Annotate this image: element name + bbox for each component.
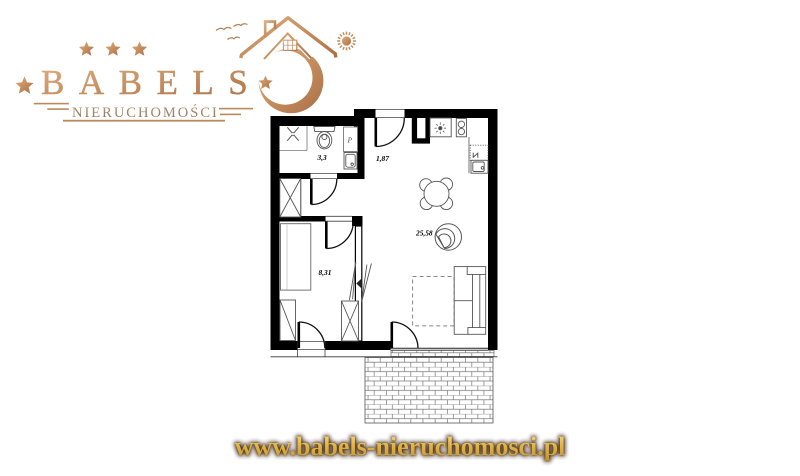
svg-text:1,87: 1,87 (376, 154, 389, 163)
svg-text:NIERUCHOMOŚCI: NIERUCHOMOŚCI (72, 104, 219, 121)
svg-text:BABELS: BABELS (41, 63, 262, 102)
svg-text:8,31: 8,31 (319, 268, 332, 277)
svg-text:www.babels-nieruchomosci.pl: www.babels-nieruchomosci.pl (235, 432, 566, 461)
svg-text:25,58: 25,58 (415, 229, 433, 238)
svg-text:P: P (347, 137, 353, 145)
svg-text:3,3: 3,3 (317, 153, 328, 162)
